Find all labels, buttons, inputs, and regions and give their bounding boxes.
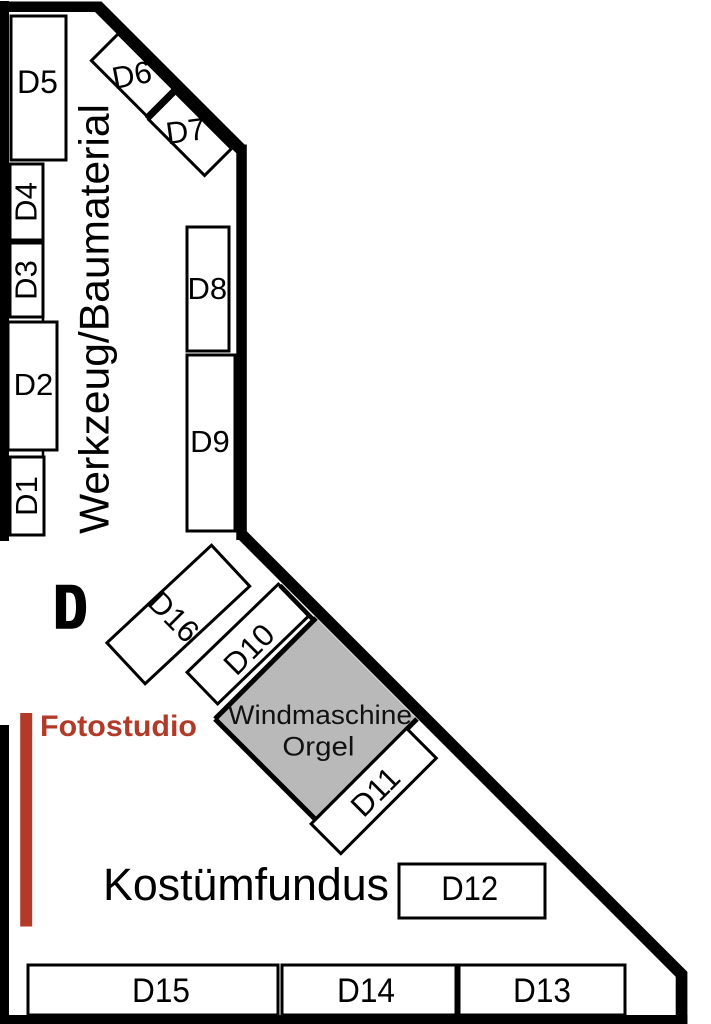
svg-text:D14: D14 — [337, 972, 395, 1010]
svg-text:D12: D12 — [441, 870, 498, 908]
svg-text:D8: D8 — [187, 271, 227, 306]
svg-text:D5: D5 — [17, 64, 58, 100]
svg-text:D15: D15 — [132, 972, 190, 1010]
svg-text:Werkzeug/Baumaterial: Werkzeug/Baumaterial — [71, 104, 118, 534]
svg-text:D13: D13 — [513, 972, 571, 1010]
svg-text:D4: D4 — [9, 182, 44, 222]
svg-text:D9: D9 — [190, 424, 230, 459]
svg-text:Orgel: Orgel — [282, 732, 354, 762]
svg-text:Fotostudio: Fotostudio — [40, 710, 197, 743]
svg-text:Windmaschine: Windmaschine — [228, 700, 412, 730]
svg-text:D1: D1 — [9, 476, 44, 516]
svg-text:D7: D7 — [164, 111, 208, 151]
svg-text:D3: D3 — [9, 260, 44, 300]
svg-text:D6: D6 — [109, 54, 155, 96]
svg-text:Kostümfundus: Kostümfundus — [103, 859, 389, 910]
svg-text:D2: D2 — [14, 367, 54, 402]
